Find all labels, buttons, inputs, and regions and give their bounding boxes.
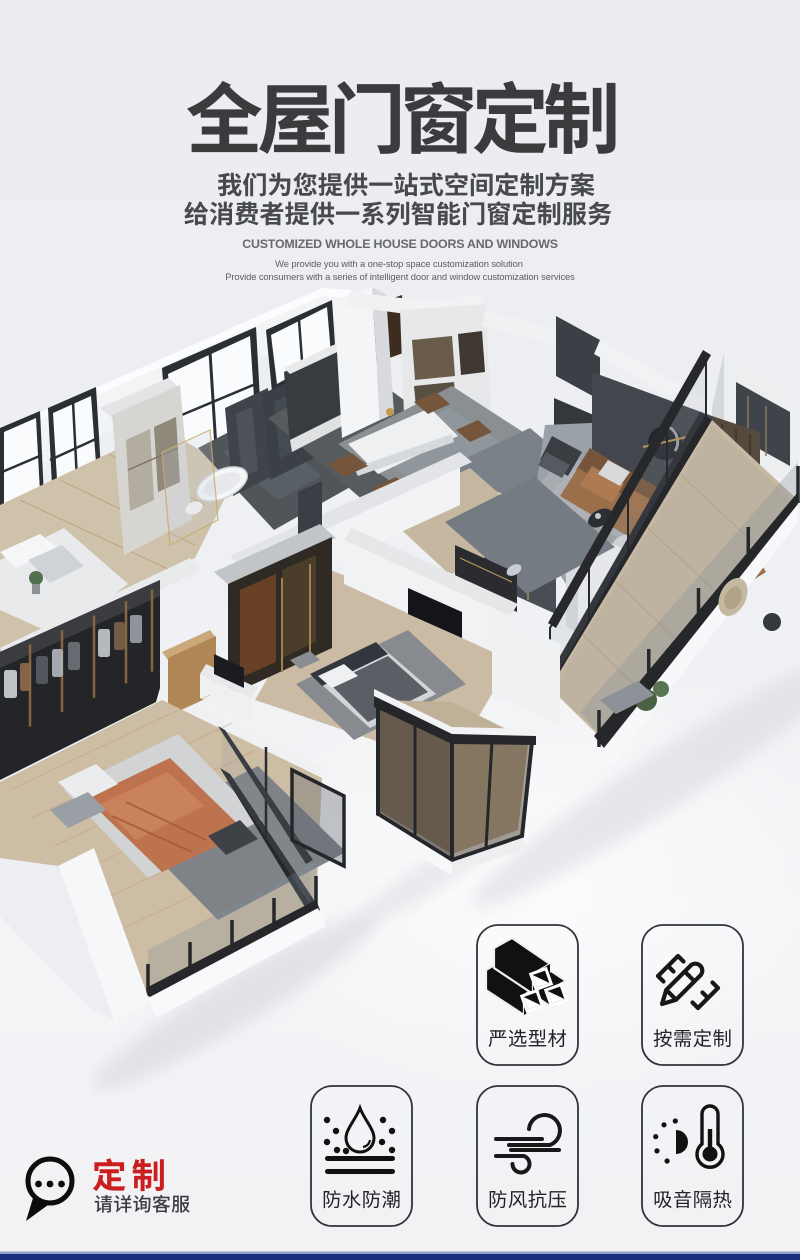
svg-text:Provide consumers with a serie: Provide consumers with a series of intel… [225,271,575,282]
svg-text:We provide you with a one-stop: We provide you with a one-stop space cus… [275,258,523,269]
svg-text:CUSTOMIZED WHOLE HOUSE DOORS A: CUSTOMIZED WHOLE HOUSE DOORS AND WINDOWS [242,237,558,251]
